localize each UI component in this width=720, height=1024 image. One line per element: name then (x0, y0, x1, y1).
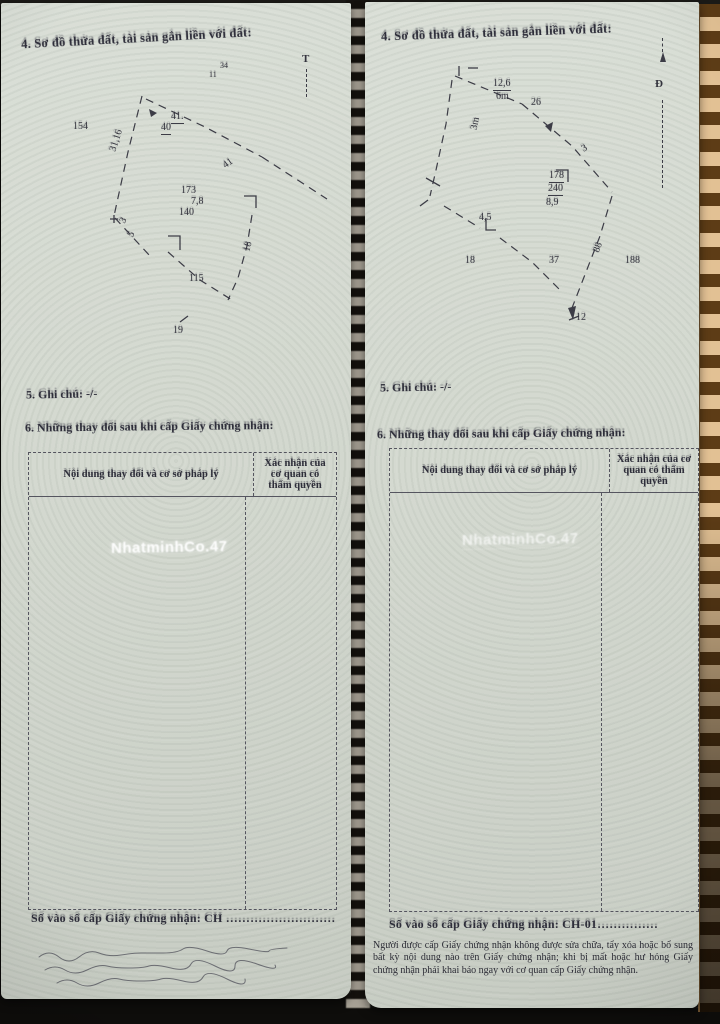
north-arrow-icon: Đ (655, 78, 663, 90)
column-header-content: Nội dung thay đổi và cơ sở pháp lý (29, 453, 254, 496)
serial-number-line: Số vào sổ cấp Giấy chứng nhận: CH-01…………… (389, 917, 658, 932)
diagram-measurement: 4,5 (479, 212, 492, 223)
diagram-measurement: 3 (117, 216, 129, 226)
changes-table-header: Nội dung thay đổi và cơ sở pháp lý Xác n… (29, 453, 336, 497)
changes-table-header: Nội dung thay đổi và cơ sở pháp lý Xác n… (390, 449, 698, 493)
changes-table-body: NhatminhCo.47 (390, 493, 698, 911)
diagram-measurement: 5 (125, 230, 137, 240)
diagram-measurement: 18 (465, 255, 475, 266)
diagram-measurement: 178 (549, 170, 564, 183)
certificate-page-right: 4. Sơ đồ thửa đất, tài sản gắn liền với … (365, 2, 699, 1008)
certificate-page-left: 4. Sơ đồ thửa đất, tài sản gắn liền với … (1, 3, 351, 999)
changes-table: Nội dung thay đổi và cơ sở pháp lý Xác n… (389, 448, 699, 912)
certificate-fine-print: Người được cấp Giấy chứng nhận không đượ… (373, 940, 693, 977)
page-title: 4. Sơ đồ thửa đất, tài sản gắn liền với … (381, 18, 701, 44)
changes-section-heading: 6. Những thay đổi sau khi cấp Giấy chứng… (377, 425, 692, 443)
diagram-measurement: 19 (173, 325, 183, 336)
watermark-text: NhatminhCo.47 (462, 530, 579, 550)
diagram-measurement: 37 (549, 255, 559, 266)
table-column-divider (245, 497, 246, 909)
diagram-measurement: 34 (220, 61, 228, 70)
diagram-measurement: 7,8 (191, 196, 204, 207)
woven-mat-right-edge (698, 4, 720, 1012)
diagram-measurement: 154 (73, 121, 88, 132)
changes-table-body: NhatminhCo.47 (29, 497, 336, 909)
north-arrow-icon: T (302, 53, 309, 65)
diagram-measurement: 6m (496, 91, 509, 102)
page-title: 4. Sơ đồ thửa đất, tài sản gắn liền với … (21, 21, 341, 53)
column-header-content: Nội dung thay đổi và cơ sở pháp lý (390, 449, 610, 492)
watermark-text: NhatminhCo.47 (111, 538, 228, 557)
north-arrow-line-top (662, 38, 663, 52)
diagram-measurement: 18 (241, 240, 254, 253)
diagram-measurement: 188 (625, 255, 640, 266)
diagram-measurement: 12,6 (493, 78, 511, 91)
column-header-confirmation: Xác nhận của cơ quan có thẩm quyền (610, 449, 698, 492)
diagram-measurement: 11 (209, 70, 217, 79)
changes-table: Nội dung thay đổi và cơ sở pháp lý Xác n… (28, 452, 337, 910)
diagram-measurement: 41 (221, 156, 236, 171)
diagram-measurement: 31,16 (108, 128, 125, 153)
changes-section-heading: 6. Những thay đổi sau khi cấp Giấy chứng… (25, 417, 335, 435)
note-section: 5. Ghi chú: -/- (26, 386, 98, 402)
diagram-measurement: 41. (171, 111, 184, 124)
cadastral-plot-sketch (365, 2, 699, 362)
diagram-measurement: 12 (576, 312, 586, 323)
diagram-measurement: 173 (181, 185, 196, 196)
table-column-divider (601, 493, 602, 911)
diagram-measurement: 140 (179, 207, 194, 218)
diagram-measurement: 88 (591, 241, 605, 254)
diagram-measurement: 40 (161, 122, 171, 135)
diagram-measurement: 8,9 (546, 197, 559, 208)
diagram-measurement: 3m (469, 116, 482, 131)
north-arrow-line (306, 69, 307, 97)
photo-of-land-certificate: 4. Sơ đồ thửa đất, tài sản gắn liền với … (0, 0, 720, 1024)
serial-number-line: Số vào sổ cấp Giấy chứng nhận: CH ………………… (31, 911, 336, 926)
diagram-measurement: 3 (580, 142, 590, 154)
column-header-confirmation: Xác nhận của cơ quan có thẩm quyền (254, 453, 336, 496)
cadastral-plot-sketch (1, 3, 351, 363)
diagram-measurement: 240 (548, 183, 563, 196)
diagram-measurement: 115 (189, 273, 204, 284)
diagram-measurement: 26 (531, 97, 541, 108)
north-arrow-line (662, 100, 663, 188)
note-section: 5. Ghi chú: -/- (380, 379, 452, 395)
